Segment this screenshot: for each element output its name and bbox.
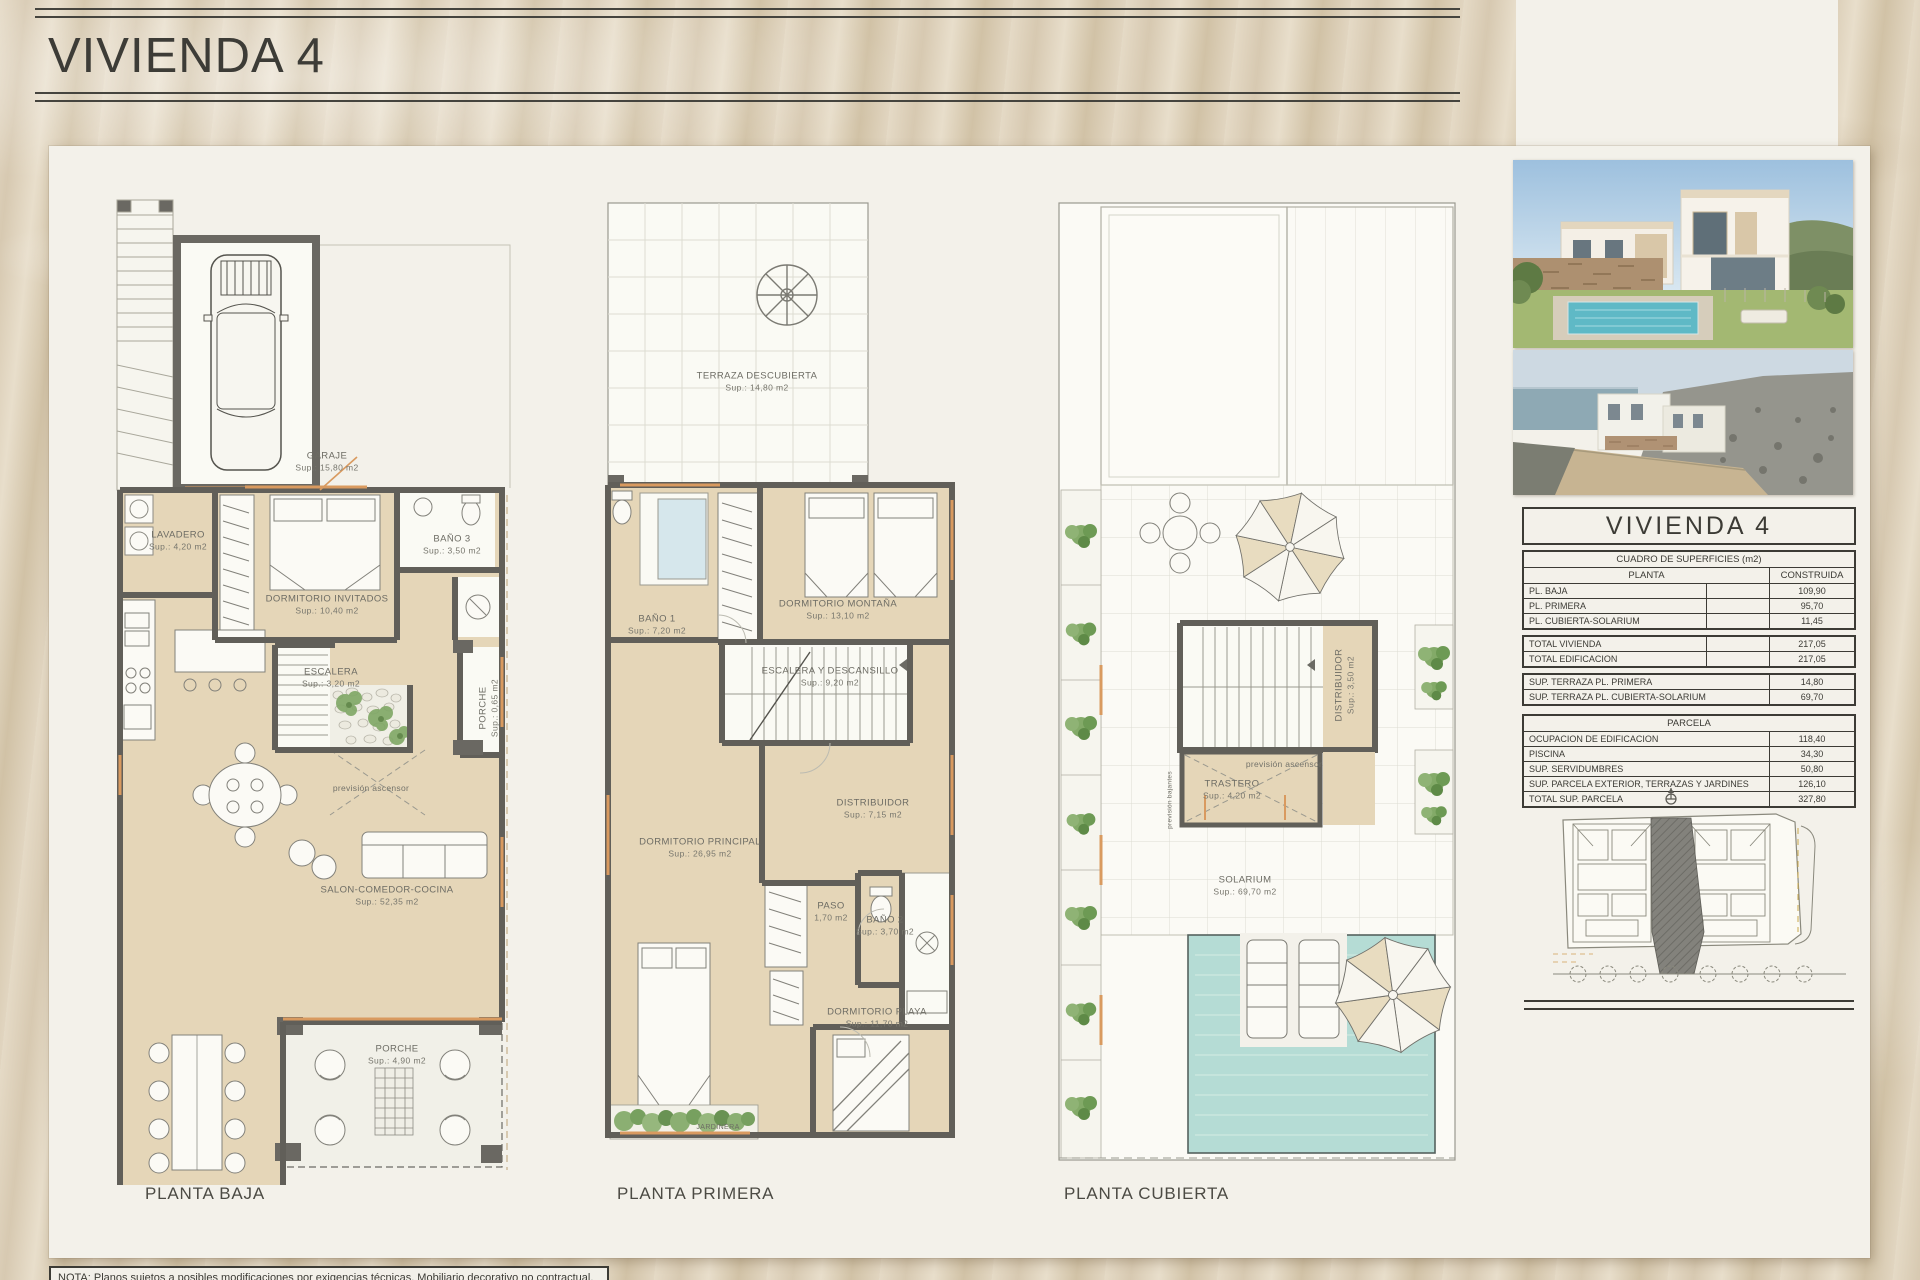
table-row: PL. PRIMERA95,70 [1524,599,1854,614]
porch [275,1017,502,1167]
table-title: VIVIENDA 4 [1524,509,1854,543]
surface-summary-table: VIVIENDA 4 CUADRO DE SUPERFICIES (m2) PL… [1522,507,1856,813]
room-label-lavadero: LAVADEROSup.: 4,20 m2 [149,528,207,553]
terrace-section: SUP. TERRAZA PL. PRIMERA14,80 SUP. TERRA… [1522,673,1856,706]
table-row: PL. CUBIERTA-SOLARIUM11,45 [1524,614,1854,628]
totals-section: TOTAL VIVIENDA217,05 TOTAL EDIFICACION21… [1522,635,1856,668]
table-row: TOTAL VIVIENDA217,05 [1524,637,1854,652]
planta-primera-drawing [600,195,960,1185]
room-label-terraza-descubierta: TERRAZA DESCUBIERTASup.: 14,80 m2 [697,369,818,394]
table-row: TOTAL SUP. PARCELA327,80 [1524,792,1854,806]
room-label-bano3: BAÑO 3Sup.: 3,50 m2 [423,532,481,557]
lounger-icon [1741,310,1787,323]
wardrobe-icon [765,883,807,1025]
terrace-feature-icon [757,265,817,325]
footer-double-rule [1524,1000,1854,1010]
driveway-stairs [117,200,173,490]
room-label-dormitorio-playa: DORMITORIO PLAYASup.: 11,70 m2 [827,1005,927,1030]
room-label-dormitorio-invitados: DORMITORIO INVITADOSSup.: 10,40 m2 [266,592,389,617]
caption-planta-primera: PLANTA PRIMERA [617,1184,774,1204]
terrace [608,203,868,487]
col-planta: PLANTA [1524,568,1769,583]
table-row: OCUPACION DE EDIFICACION118,40 [1524,732,1854,747]
page-title: VIVIENDA 4 [48,28,325,84]
beach-bed-icon [833,1035,909,1131]
title-underline-rule [35,92,1460,102]
table-row: SUP. SERVIDUMBRES50,80 [1524,762,1854,777]
disclaimer-note: NOTA: Planos sujetos a posibles modifica… [49,1266,609,1280]
wardrobe-icon [220,495,254,635]
room-label-dormitorio-montana: DORMITORIO MONTAÑASup.: 13,10 m2 [779,597,897,622]
room-label-porche-baja: PORCHESup.: 4,90 m2 [368,1042,426,1067]
wardrobe-icon [718,493,758,640]
room-label-distribuidor-primera: DISTRIBUIDORSup.: 7,15 m2 [837,796,910,821]
stairs-icon [722,645,910,743]
render-photo-coast [1513,350,1853,495]
table-row: PISCINA34,30 [1524,747,1854,762]
render-photo-pool [1513,160,1853,348]
car-icon [204,255,288,470]
render-photo-coast-art [1513,350,1853,495]
table-row: SUP. TERRAZA PL. CUBIERTA-SOLARIUM69,70 [1524,690,1854,704]
room-label-bano1: BAÑO 1Sup.: 7,20 m2 [628,612,686,637]
room-label-bano2: BAÑO 2Sup.: 3,70 m2 [856,913,914,938]
toilet-icon [612,491,632,524]
label-prevision-ascensor-baja: previsión ascensor [333,783,409,793]
planta-cubierta-drawing [1055,195,1460,1185]
paper-strip [1516,0,1838,150]
table-row: SUP. TERRAZA PL. PRIMERA14,80 [1524,675,1854,690]
parcela-section: PARCELA OCUPACION DE EDIFICACION118,40 P… [1522,714,1856,808]
table-row: TOTAL EDIFICACION217,05 [1524,652,1854,666]
room-label-garaje: GARAJESup.: 15,80 m2 [295,449,358,474]
planter-column [1061,490,1101,1158]
surfaces-header: CUADRO DE SUPERFICIES (m2) [1524,552,1854,568]
label-prevision-ascensor-cubierta: previsión ascensor [1246,759,1322,769]
room-label-escalera-baja: ESCALERASup.: 3,20 m2 [302,665,360,690]
label-prevision-bajantes: previsión bajantes [1167,771,1174,829]
room-label-jardinera: JARDINERA [696,1123,739,1133]
parcela-header: PARCELA [1524,716,1854,732]
room-label-trastero: TRASTEROSup.: 4,20 m2 [1203,777,1261,802]
render-photo-pool-art [1513,160,1853,348]
room-label-paso: PASO1,70 m2 [814,899,848,924]
site-plan-drawing [1548,812,1853,997]
room-label-distribuidor-cubierta: DISTRIBUIDORSup.: 3,50 m2 [1332,649,1357,722]
room-label-porche-lateral: PORCHESup.: 0,65 m2 [476,679,501,737]
room-label-solarium: SOLARIUMSup.: 69,70 m2 [1213,873,1276,898]
col-construida: CONSTRUIDA [1769,568,1854,583]
main-bed-icon [638,943,710,1115]
caption-planta-cubierta: PLANTA CUBIERTA [1064,1184,1229,1204]
room-label-salon: SALON-COMEDOR-COCINASup.: 52,35 m2 [320,883,453,908]
surfaces-section: CUADRO DE SUPERFICIES (m2) PLANTA CONSTR… [1522,550,1856,630]
north-arrow-icon [1660,786,1682,808]
top-double-rule [35,8,1460,18]
guest-bed-icon [270,495,380,590]
table-row: SUP. PARCELA EXTERIOR, TERRAZAS Y JARDIN… [1524,777,1854,792]
table-row: PL. BAJA109,90 [1524,584,1854,599]
caption-planta-baja: PLANTA BAJA [145,1184,265,1204]
rug-icon [375,1068,413,1135]
room-label-escalera-descansillo: ESCALERA Y DESCANSILLOSup.: 9,20 m2 [762,664,899,689]
plan-sheet: VIVIENDA 4 [0,0,1920,1280]
room-label-dormitorio-principal: DORMITORIO PRINCIPALSup.: 26,95 m2 [639,835,761,860]
